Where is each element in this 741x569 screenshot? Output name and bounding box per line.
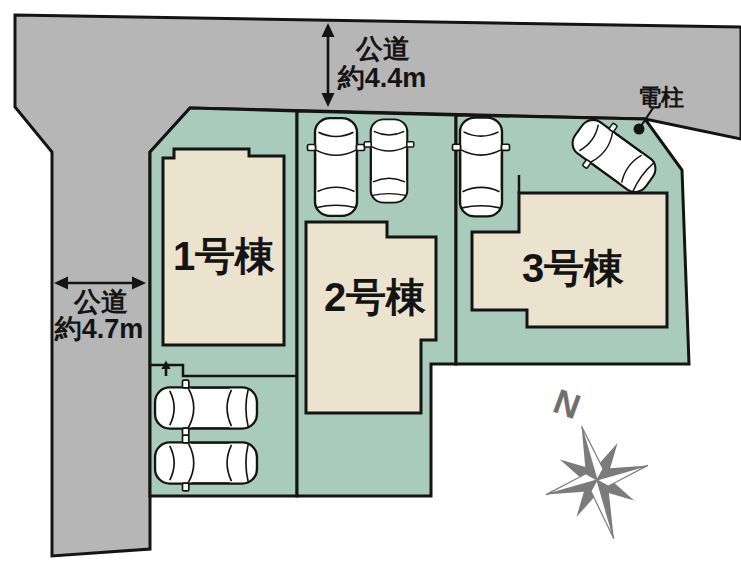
left-road-name: 公道 bbox=[73, 287, 128, 317]
house-1-label: 1号棟 bbox=[173, 234, 275, 278]
top-road-name: 公道 bbox=[355, 34, 410, 64]
car-icon bbox=[453, 118, 510, 217]
utility-pole-dot bbox=[634, 124, 645, 135]
car-icon bbox=[155, 435, 257, 491]
left-road-width-label: 約4.7m bbox=[54, 314, 144, 344]
car-icon bbox=[155, 380, 257, 436]
site-plan-canvas: 1号棟 2号棟 3号棟 公道 約4.4m 公道 約4.7m 電柱 N bbox=[0, 0, 741, 569]
house-2-label: 2号棟 bbox=[324, 275, 426, 319]
utility-pole-label: 電柱 bbox=[638, 84, 684, 110]
site-plan-drawing: 1号棟 2号棟 3号棟 公道 約4.4m 公道 約4.7m 電柱 N bbox=[0, 0, 741, 569]
house-3-label: 3号棟 bbox=[522, 246, 624, 290]
car-icon bbox=[308, 118, 365, 216]
car-icon bbox=[364, 119, 414, 202]
top-road-width-label: 約4.4m bbox=[337, 63, 427, 93]
